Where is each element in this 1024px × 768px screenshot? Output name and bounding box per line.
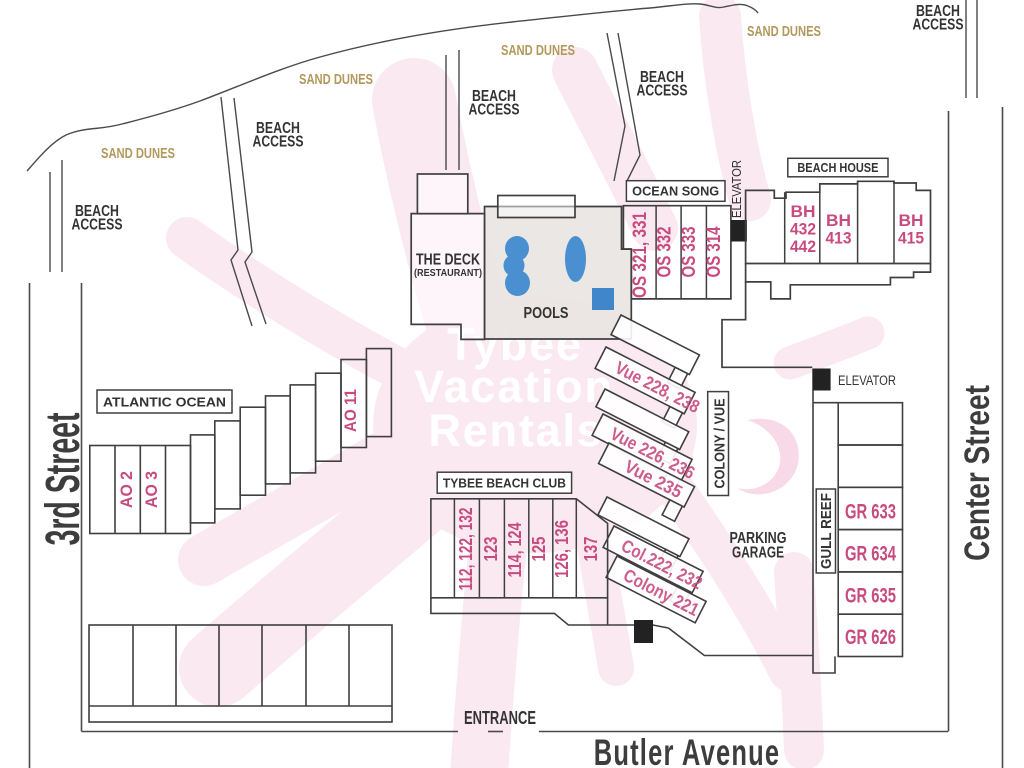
svg-text:123: 123 (481, 537, 501, 562)
svg-text:ACCESS: ACCESS (253, 134, 304, 151)
svg-text:BH: BH (826, 212, 851, 230)
svg-text:413: 413 (826, 230, 852, 248)
svg-text:OCEAN SONG: OCEAN SONG (632, 185, 719, 199)
svg-text:BH: BH (899, 212, 924, 230)
svg-text:Rentals: Rentals (428, 405, 603, 456)
svg-text:BH: BH (791, 203, 816, 221)
svg-text:ENTRANCE: ENTRANCE (464, 708, 536, 728)
svg-text:SAND DUNES: SAND DUNES (747, 23, 821, 40)
svg-text:Center Street: Center Street (957, 385, 997, 561)
svg-text:POOLS: POOLS (524, 305, 569, 322)
svg-text:COLONY / VUE: COLONY / VUE (712, 399, 729, 489)
svg-text:ELEVATOR: ELEVATOR (730, 160, 744, 218)
svg-text:415: 415 (898, 230, 924, 248)
svg-text:GR 635: GR 635 (845, 585, 896, 608)
svg-text:112, 122, 132: 112, 122, 132 (456, 508, 476, 591)
svg-text:442: 442 (790, 238, 816, 256)
svg-text:ATLANTIC OCEAN: ATLANTIC OCEAN (103, 396, 226, 410)
svg-text:OS 332: OS 332 (654, 226, 676, 277)
svg-text:137: 137 (581, 537, 601, 562)
svg-text:(RESTAURANT): (RESTAURANT) (414, 268, 482, 279)
svg-text:125: 125 (529, 537, 549, 562)
svg-text:GR 633: GR 633 (845, 501, 896, 524)
svg-text:AO 2: AO 2 (117, 471, 136, 508)
svg-text:BEACH HOUSE: BEACH HOUSE (797, 161, 878, 175)
svg-text:OS 333: OS 333 (678, 226, 700, 277)
svg-text:OS 321, 331: OS 321, 331 (629, 212, 651, 298)
svg-text:GARAGE: GARAGE (732, 545, 784, 562)
svg-text:SAND DUNES: SAND DUNES (101, 145, 175, 162)
svg-text:GR 634: GR 634 (845, 543, 896, 566)
svg-text:ACCESS: ACCESS (913, 17, 964, 34)
svg-text:SAND DUNES: SAND DUNES (299, 71, 373, 88)
svg-text:ACCESS: ACCESS (637, 83, 688, 100)
svg-text:GR 626: GR 626 (845, 626, 896, 649)
svg-text:ACCESS: ACCESS (72, 217, 123, 234)
svg-text:THE DECK: THE DECK (416, 252, 481, 269)
svg-text:TYBEE BEACH CLUB: TYBEE BEACH CLUB (443, 477, 566, 491)
svg-text:GULL REEF: GULL REEF (818, 493, 835, 569)
svg-text:126, 136: 126, 136 (552, 520, 572, 578)
svg-text:SAND DUNES: SAND DUNES (501, 42, 575, 59)
svg-text:OS 314: OS 314 (703, 226, 725, 277)
svg-text:ELEVATOR: ELEVATOR (838, 373, 896, 388)
svg-text:432: 432 (790, 221, 816, 239)
svg-text:Butler Avenue: Butler Avenue (594, 731, 781, 768)
svg-text:114, 124: 114, 124 (505, 523, 525, 578)
svg-text:ACCESS: ACCESS (469, 102, 520, 119)
svg-text:AO 3: AO 3 (142, 471, 161, 508)
svg-text:AO 11: AO 11 (341, 389, 360, 432)
